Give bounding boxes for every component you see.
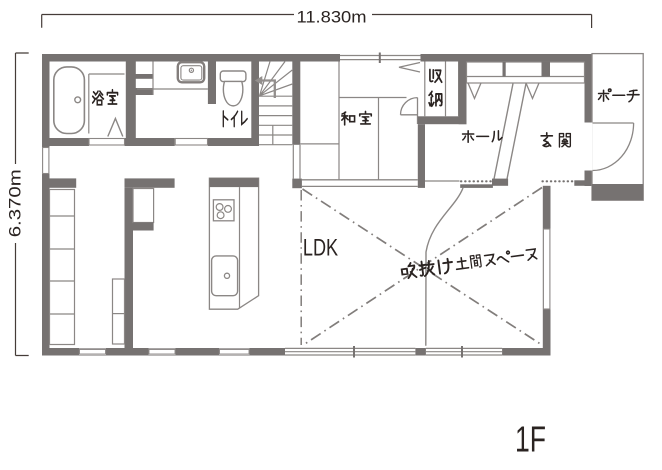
- svg-text:6.370m: 6.370m: [6, 169, 25, 237]
- svg-text:LDK: LDK: [303, 235, 338, 262]
- svg-text:1F: 1F: [515, 419, 546, 460]
- svg-text:11.830m: 11.830m: [297, 7, 367, 26]
